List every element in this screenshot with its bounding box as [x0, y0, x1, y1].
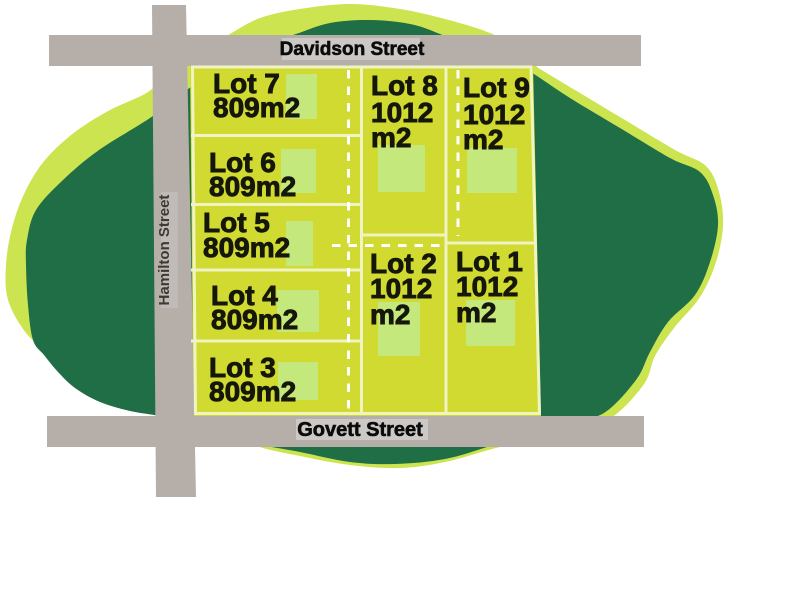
svg-text:Davidson Street: Davidson Street [280, 39, 425, 60]
svg-text:Govett Street: Govett Street [297, 419, 423, 441]
svg-text:Hamilton Street: Hamilton Street [156, 195, 173, 306]
